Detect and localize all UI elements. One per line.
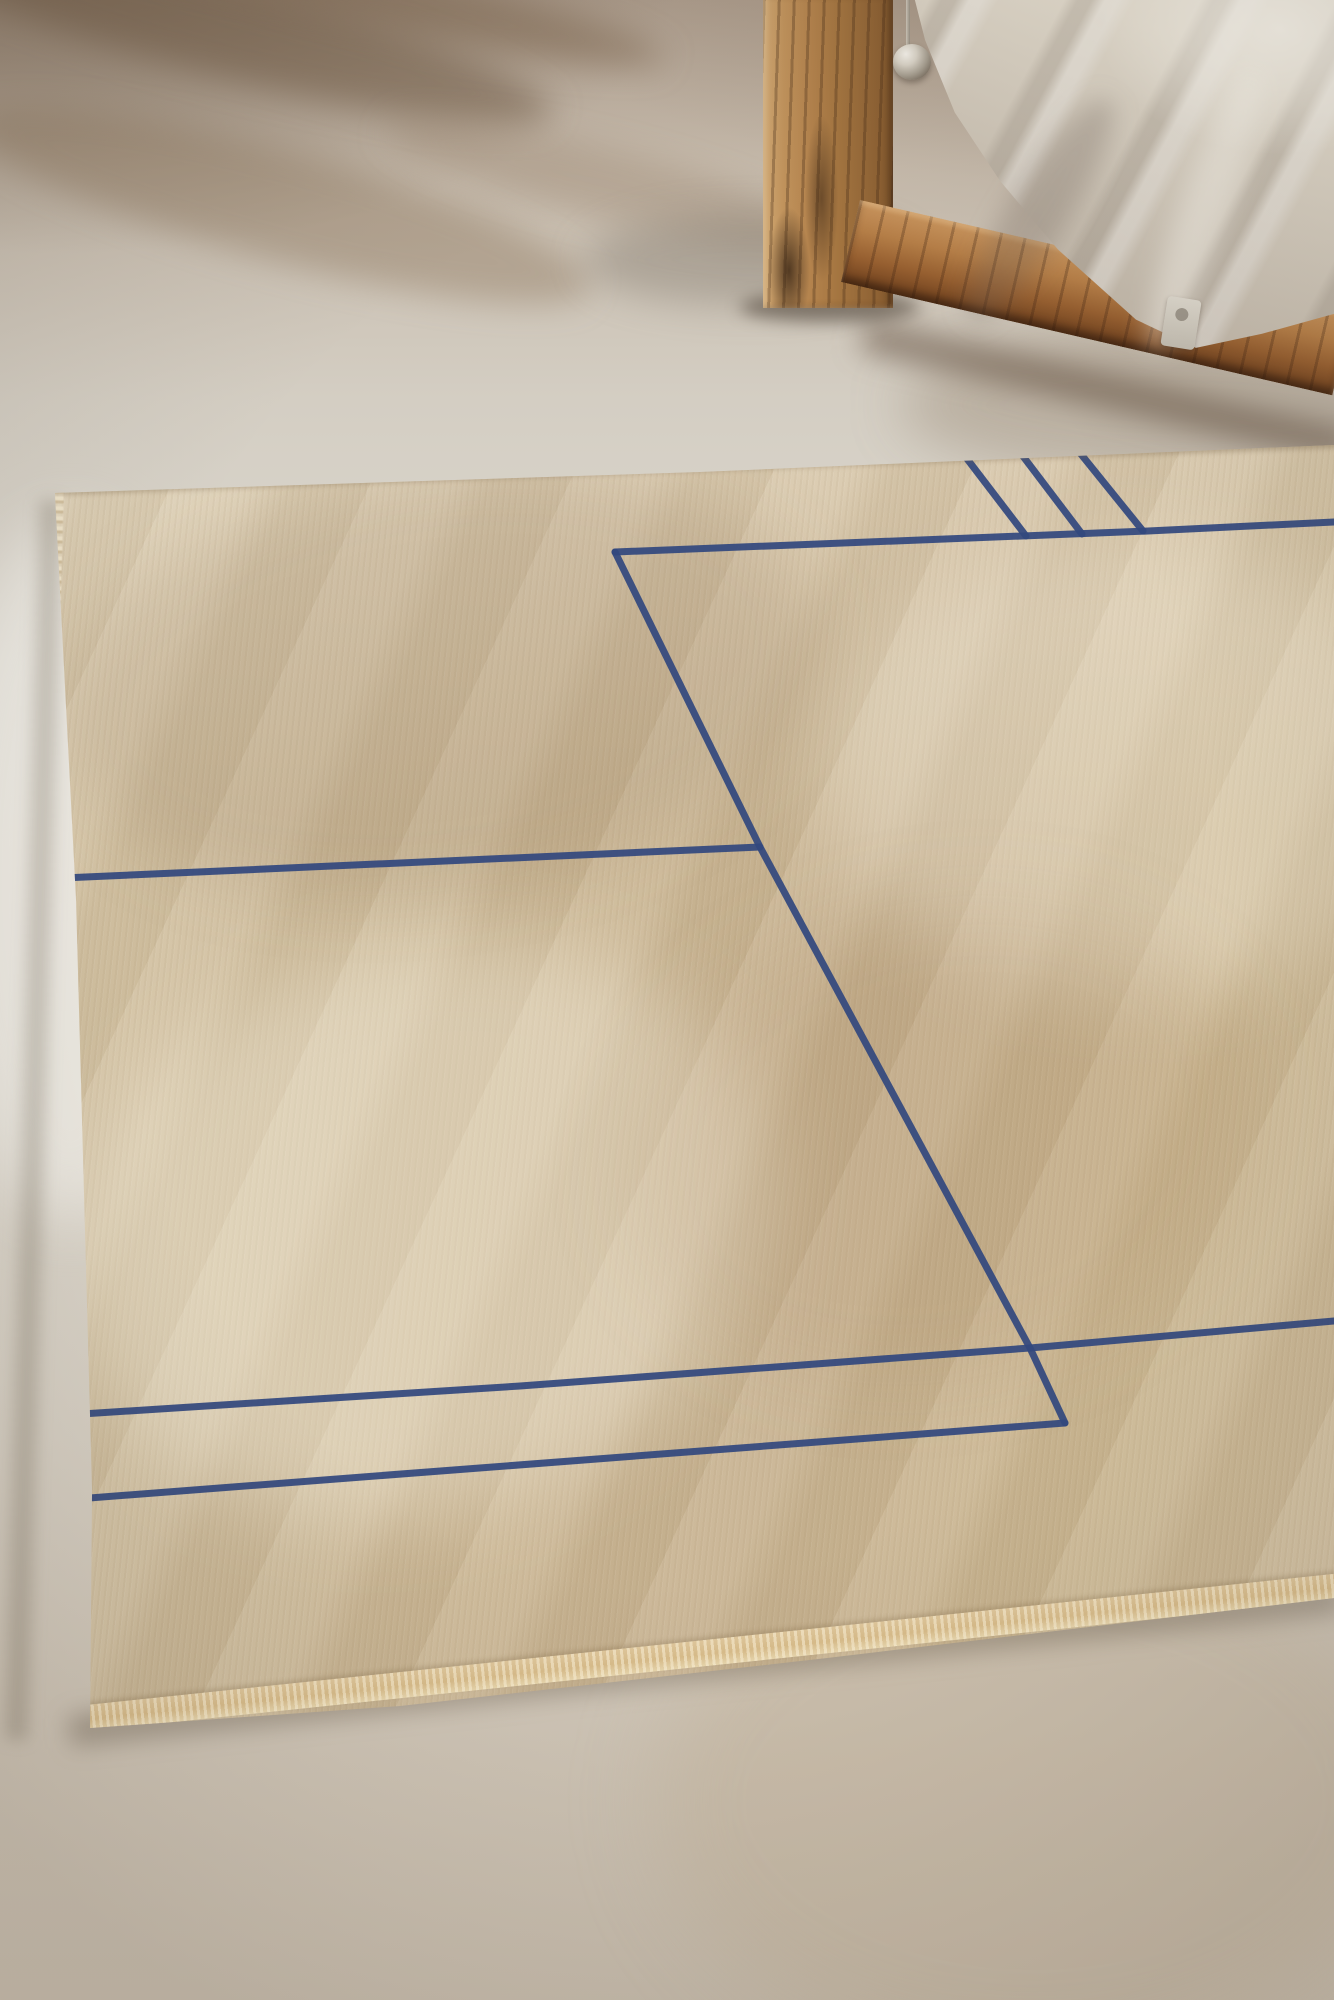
pattern-line-mid-left-line	[40, 847, 760, 879]
pattern-line-stripe-3	[1076, 448, 1143, 531]
lamp-chrome-knob	[893, 44, 931, 80]
pattern-line-lower-long-line	[50, 1321, 1334, 1416]
pattern-line-inner-rect-bottom	[50, 1423, 1065, 1501]
pattern-line-inner-rect-right	[615, 552, 1065, 1423]
pattern-line-inner-rect-top	[615, 522, 1334, 552]
photo-scene	[0, 0, 1334, 2000]
pattern-line-stripe-2	[1016, 447, 1082, 534]
